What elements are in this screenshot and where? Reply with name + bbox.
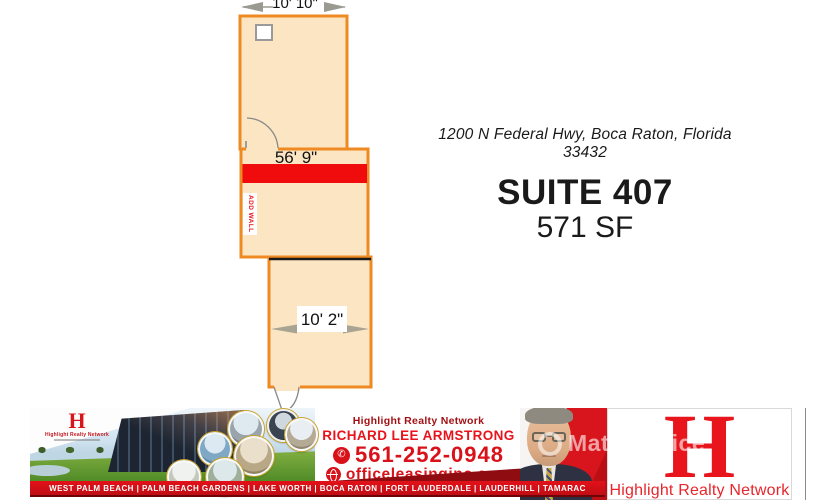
floor-plan: 10' 10" 56' 9" 10' 2" bbox=[0, 0, 420, 430]
phone-icon: ✆ bbox=[333, 447, 350, 464]
mini-brand-name: Highlight Realty Network bbox=[42, 432, 112, 438]
brand-name: Highlight Realty Network bbox=[608, 482, 791, 500]
dim-middle-label: 56' 9" bbox=[275, 148, 317, 167]
listing-suite: SUITE 407 bbox=[420, 175, 750, 210]
h-monogram: H bbox=[608, 411, 791, 481]
realty-banner: H Highlight Realty Network Highlight Rea… bbox=[30, 408, 807, 500]
property-photo-inset bbox=[285, 418, 318, 451]
dim-bottom-label: 10' 2" bbox=[301, 310, 343, 329]
brand-logo-panel: H Highlight Realty Network bbox=[607, 408, 792, 500]
agent-name: RICHARD LEE ARMSTRONG bbox=[322, 428, 514, 443]
listing-size: 571 SF bbox=[420, 213, 750, 243]
phone-number: 561-252-0948 bbox=[355, 444, 504, 466]
flyer-page: 10' 10" 56' 9" 10' 2" ADD WALL 1200 N Fe… bbox=[0, 0, 825, 500]
portrait-hair bbox=[525, 408, 573, 424]
add-wall-label: ADD WALL bbox=[243, 193, 257, 235]
window-marker bbox=[256, 25, 272, 40]
banner-right-border bbox=[805, 408, 806, 500]
dim-top-label: 10' 10" bbox=[272, 0, 318, 12]
cities-strip: WEST PALM BEACH | PALM BEACH GARDENS | L… bbox=[30, 481, 605, 497]
network-name: Highlight Realty Network bbox=[353, 415, 484, 427]
listing-info: 1200 N Federal Hwy, Boca Raton, Florida … bbox=[420, 126, 750, 243]
globe-icon bbox=[326, 467, 341, 482]
listing-address: 1200 N Federal Hwy, Boca Raton, Florida … bbox=[420, 126, 750, 162]
mini-h-monogram: H bbox=[42, 410, 112, 432]
portrait-glasses bbox=[532, 432, 566, 443]
contact-panel: Highlight Realty Network RICHARD LEE ARM… bbox=[315, 408, 522, 482]
portrait-mouth bbox=[542, 455, 556, 457]
mini-brand-tagline bbox=[54, 439, 100, 441]
mini-brand-logo: H Highlight Realty Network bbox=[42, 410, 112, 441]
cities-line: WEST PALM BEACH | PALM BEACH GARDENS | L… bbox=[49, 484, 586, 493]
